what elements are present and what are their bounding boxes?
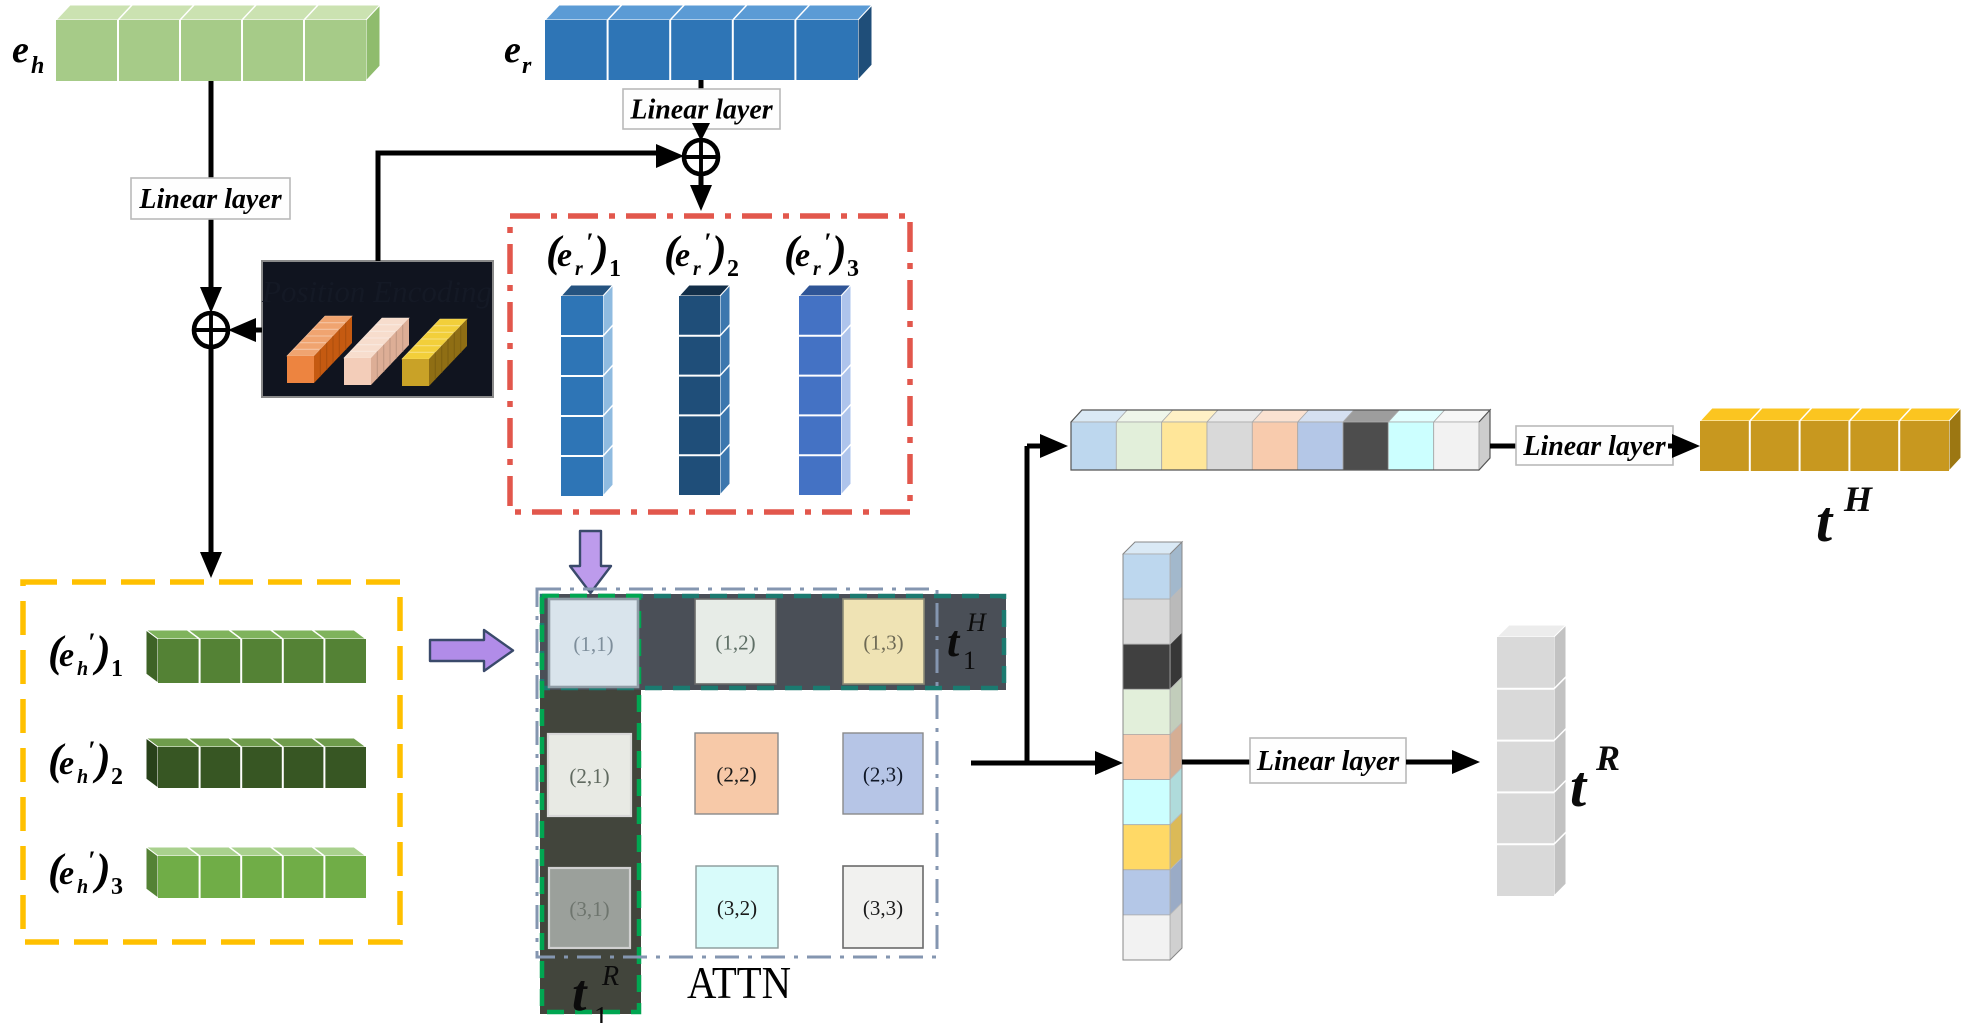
svg-text:h: h: [31, 53, 44, 79]
svg-text:Linear layer: Linear layer: [138, 184, 282, 215]
svg-text:e: e: [795, 237, 810, 274]
svg-text:t: t: [947, 617, 961, 666]
svg-text:t: t: [572, 965, 588, 1022]
svg-text:e: e: [59, 745, 74, 782]
svg-text:h: h: [77, 766, 88, 788]
svg-text:(2,1): (2,1): [569, 764, 609, 788]
svg-text:R: R: [601, 961, 619, 992]
svg-text:r: r: [575, 258, 583, 280]
svg-text:(2,2): (2,2): [716, 763, 756, 787]
svg-text:Linear layer: Linear layer: [629, 95, 773, 126]
svg-text:(1,1): (1,1): [573, 632, 613, 656]
svg-text:′: ′: [704, 228, 711, 257]
svg-text:R: R: [1595, 738, 1620, 778]
svg-text:H: H: [966, 608, 987, 637]
svg-text:′: ′: [824, 228, 831, 257]
svg-text:(1,2): (1,2): [715, 631, 755, 655]
svg-text:h: h: [77, 658, 88, 680]
svg-text:e: e: [557, 237, 572, 274]
svg-text:Position Encoding: Position Encoding: [261, 274, 492, 309]
svg-text:h: h: [77, 876, 88, 898]
svg-text:(3,3): (3,3): [863, 896, 903, 920]
svg-text:Linear layer: Linear layer: [1522, 431, 1666, 462]
svg-text:e: e: [59, 637, 74, 674]
svg-text:(3,2): (3,2): [717, 896, 757, 920]
svg-text:′: ′: [586, 228, 593, 257]
svg-text:r: r: [522, 53, 532, 79]
svg-text:e: e: [504, 29, 521, 71]
svg-text:1: 1: [609, 256, 621, 282]
svg-text:r: r: [813, 258, 821, 280]
svg-text:3: 3: [111, 874, 123, 900]
svg-text:2: 2: [727, 256, 739, 282]
svg-text:Linear layer: Linear layer: [1256, 746, 1400, 777]
svg-text:1: 1: [963, 646, 976, 675]
svg-text:1: 1: [111, 656, 123, 682]
svg-text:′: ′: [88, 628, 95, 657]
svg-text:1: 1: [594, 1002, 608, 1023]
svg-text:r: r: [693, 258, 701, 280]
svg-text:ATTN: ATTN: [687, 957, 791, 1008]
svg-text:H: H: [1843, 479, 1873, 519]
svg-text:t: t: [1570, 754, 1588, 819]
svg-text:e: e: [12, 29, 29, 71]
svg-text:′: ′: [88, 846, 95, 875]
svg-text:t: t: [1816, 489, 1834, 554]
svg-text:3: 3: [847, 256, 859, 282]
svg-text:2: 2: [111, 764, 123, 790]
svg-text:(1,3): (1,3): [863, 631, 903, 655]
svg-text:′: ′: [88, 736, 95, 765]
svg-text:e: e: [59, 855, 74, 892]
svg-text:e: e: [675, 237, 690, 274]
svg-text:(3,1): (3,1): [569, 897, 609, 921]
svg-text:(2,3): (2,3): [863, 763, 903, 787]
